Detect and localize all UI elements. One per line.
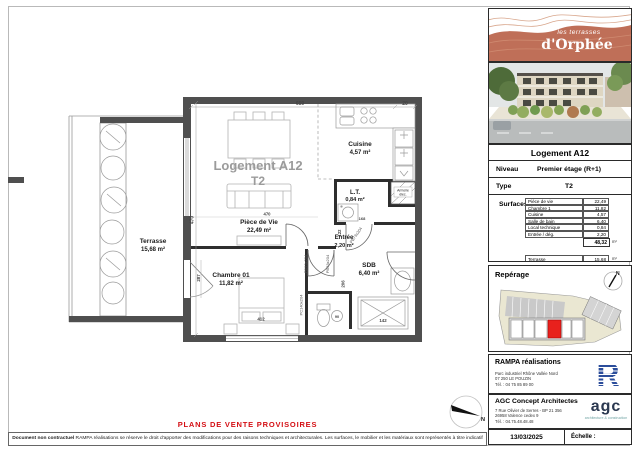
surface-value: 11,82 bbox=[583, 205, 609, 212]
terrasse-value: 15,68 bbox=[583, 255, 609, 262]
terrace-top-wall bbox=[100, 117, 183, 123]
watermark-line1: Logement A12 bbox=[213, 158, 302, 173]
surfaces-total-unit: m² bbox=[612, 239, 617, 244]
type-label: Type bbox=[496, 183, 511, 190]
dim-wc: 90 bbox=[335, 315, 339, 319]
area-entree: 2,20 m² bbox=[334, 242, 353, 249]
surface-name: Entrée / dég. bbox=[525, 231, 583, 238]
terrace-outline bbox=[69, 116, 183, 322]
surfaces-label: Surfaces bbox=[499, 201, 528, 208]
surface-value: 2,20 bbox=[583, 231, 609, 238]
label-lt: L.T. bbox=[350, 190, 360, 196]
area-cuisine: 4,57 m² bbox=[350, 149, 371, 156]
rampa-name: RAMPA réalisations bbox=[495, 359, 561, 366]
brand-logo-box: les terrasses d'Orphée bbox=[488, 8, 632, 62]
shower bbox=[358, 297, 408, 329]
label-terrasse: Terrasse bbox=[140, 238, 167, 245]
agc-address-3: Tél. : 04.75.48.48.48 bbox=[495, 419, 562, 424]
area-piece-de-vie: 22,49 m² bbox=[247, 227, 271, 234]
dim-sdb: 206 bbox=[341, 280, 346, 288]
terrasse-name: Terrasse bbox=[525, 255, 583, 262]
dim-top-right: 20 bbox=[402, 101, 408, 107]
kitchen-zone-dashed-line bbox=[318, 104, 334, 179]
niveau-value: Premier étage (R+1) bbox=[529, 166, 609, 173]
reperage-north-letter: N bbox=[616, 271, 620, 277]
rampa-address-3: Tél. : 04 75 85 89 00 bbox=[495, 382, 558, 387]
disclaimer-text: RAMPA réalisations se réserve le droit d… bbox=[74, 436, 483, 441]
unit-watermark: Logement A12 T2 bbox=[213, 158, 302, 188]
type-row: Type T2 bbox=[489, 178, 631, 195]
dim-shower: 142 bbox=[379, 318, 387, 323]
footer-row: 13/03/2025 Échelle : bbox=[488, 429, 632, 445]
terrace-bottom-wall bbox=[69, 316, 183, 322]
surface-name: Chambre 1 bbox=[525, 205, 583, 212]
dim-left: 470 bbox=[190, 216, 196, 225]
watermark-line2: T2 bbox=[251, 174, 265, 188]
tv-cabinet bbox=[237, 236, 281, 245]
brand-line1: les terrasses bbox=[529, 29, 629, 36]
site-plan bbox=[495, 286, 625, 348]
dim-small: 168 bbox=[359, 216, 366, 221]
washbasin bbox=[391, 268, 414, 294]
agc-logo: agc architecture & construction bbox=[583, 399, 629, 420]
surface-value: 4,57 bbox=[583, 211, 609, 218]
tag-door-chambre: PB93x204 bbox=[303, 254, 308, 273]
dim-bed: 412 bbox=[257, 317, 265, 322]
date-cell: 13/03/2025 bbox=[489, 430, 565, 445]
rampa-logo-stripes bbox=[591, 358, 625, 392]
area-terrasse: 15,68 m² bbox=[141, 246, 165, 253]
armoire-label-2: élec. bbox=[399, 193, 406, 197]
rampa-block: RAMPA réalisations Parc industriel Rhône… bbox=[488, 354, 632, 394]
floor-plan-drawing: Armoire élec. bbox=[0, 0, 488, 452]
reperage-box: Repérage N bbox=[488, 265, 632, 352]
tag-door-sdb: PB93x204 bbox=[325, 254, 330, 273]
label-chambre: Chambre 01 bbox=[212, 272, 250, 279]
terrasse-unit: m² bbox=[612, 256, 617, 261]
label-piece-de-vie: Pièce de Vie bbox=[240, 219, 278, 226]
building-render bbox=[489, 63, 631, 143]
label-cuisine: Cuisine bbox=[348, 141, 372, 148]
rampa-logo: R bbox=[591, 358, 625, 392]
disclaimer-lead: Document non contractuel bbox=[12, 436, 74, 441]
electrical-cupboard: Armoire élec. bbox=[391, 182, 415, 204]
surface-value: 22,49 bbox=[583, 198, 609, 205]
surface-name: Pièce de vie bbox=[525, 198, 583, 205]
washing-machine bbox=[338, 204, 358, 221]
rampa-address: Parc industriel Rhône Vallée Nord 07 250… bbox=[495, 371, 558, 387]
niveau-label: Niveau bbox=[496, 166, 518, 173]
surface-name: Cuisine bbox=[525, 211, 583, 218]
bedroom-bay-window bbox=[226, 336, 298, 341]
agc-address: 7 Rue Olivier de Serres - BP 21 356 2695… bbox=[495, 408, 562, 424]
building-render-box bbox=[488, 62, 632, 144]
area-chambre: 11,82 m² bbox=[219, 280, 243, 287]
type-value: T2 bbox=[529, 183, 609, 190]
reperage-title: Repérage bbox=[495, 270, 529, 279]
dim-top: 659 bbox=[296, 101, 305, 107]
dim-terrace-door: 287 bbox=[196, 274, 201, 282]
plan-sheet: Armoire élec. bbox=[0, 0, 640, 452]
agc-tagline: architecture & construction bbox=[583, 416, 629, 420]
surface-value: 6,40 bbox=[583, 218, 609, 225]
surfaces-total: 48,32 bbox=[583, 238, 610, 247]
tag-bay-chambre: PC140x204 bbox=[299, 294, 304, 316]
dim-living: 470 bbox=[264, 212, 272, 217]
agc-logo-text: agc bbox=[583, 399, 629, 415]
agc-name: AGC Concept Architectes bbox=[495, 398, 578, 405]
label-entree: Entrée bbox=[335, 235, 354, 241]
plans-notice: PLANS DE VENTE PROVISOIRES bbox=[8, 420, 487, 429]
surface-value: 0,84 bbox=[583, 224, 609, 231]
left-edge-wall-stub bbox=[8, 177, 24, 183]
area-lt: 0,84 m² bbox=[345, 196, 364, 203]
niveau-row: Niveau Premier étage (R+1) bbox=[489, 161, 631, 178]
unit-title: Logement A12 bbox=[489, 145, 631, 161]
title-block-panel: les terrasses d'Orphée bbox=[488, 6, 632, 446]
area-sdb: 6,40 m² bbox=[359, 270, 380, 277]
echelle-cell: Échelle : bbox=[571, 430, 596, 445]
dimension-texts: 659 20 470 470 287 412 206 122 168 90 14… bbox=[190, 101, 408, 323]
living-window bbox=[184, 138, 190, 216]
agc-block: AGC Concept Architectes 7 Rue Olivier de… bbox=[488, 394, 632, 429]
label-sdb: SDB bbox=[362, 262, 376, 269]
site-highlighted-unit bbox=[548, 320, 561, 338]
brand-line2: d'Orphée bbox=[523, 37, 631, 53]
surface-name: Salle de bain bbox=[525, 218, 583, 225]
disclaimer-strip: Document non contractuel RAMPA réalisati… bbox=[8, 432, 487, 446]
terrace-planter-bushes bbox=[100, 124, 127, 304]
unit-info-table: Logement A12 Niveau Premier étage (R+1) … bbox=[488, 144, 632, 262]
surface-name: Local technique bbox=[525, 224, 583, 231]
